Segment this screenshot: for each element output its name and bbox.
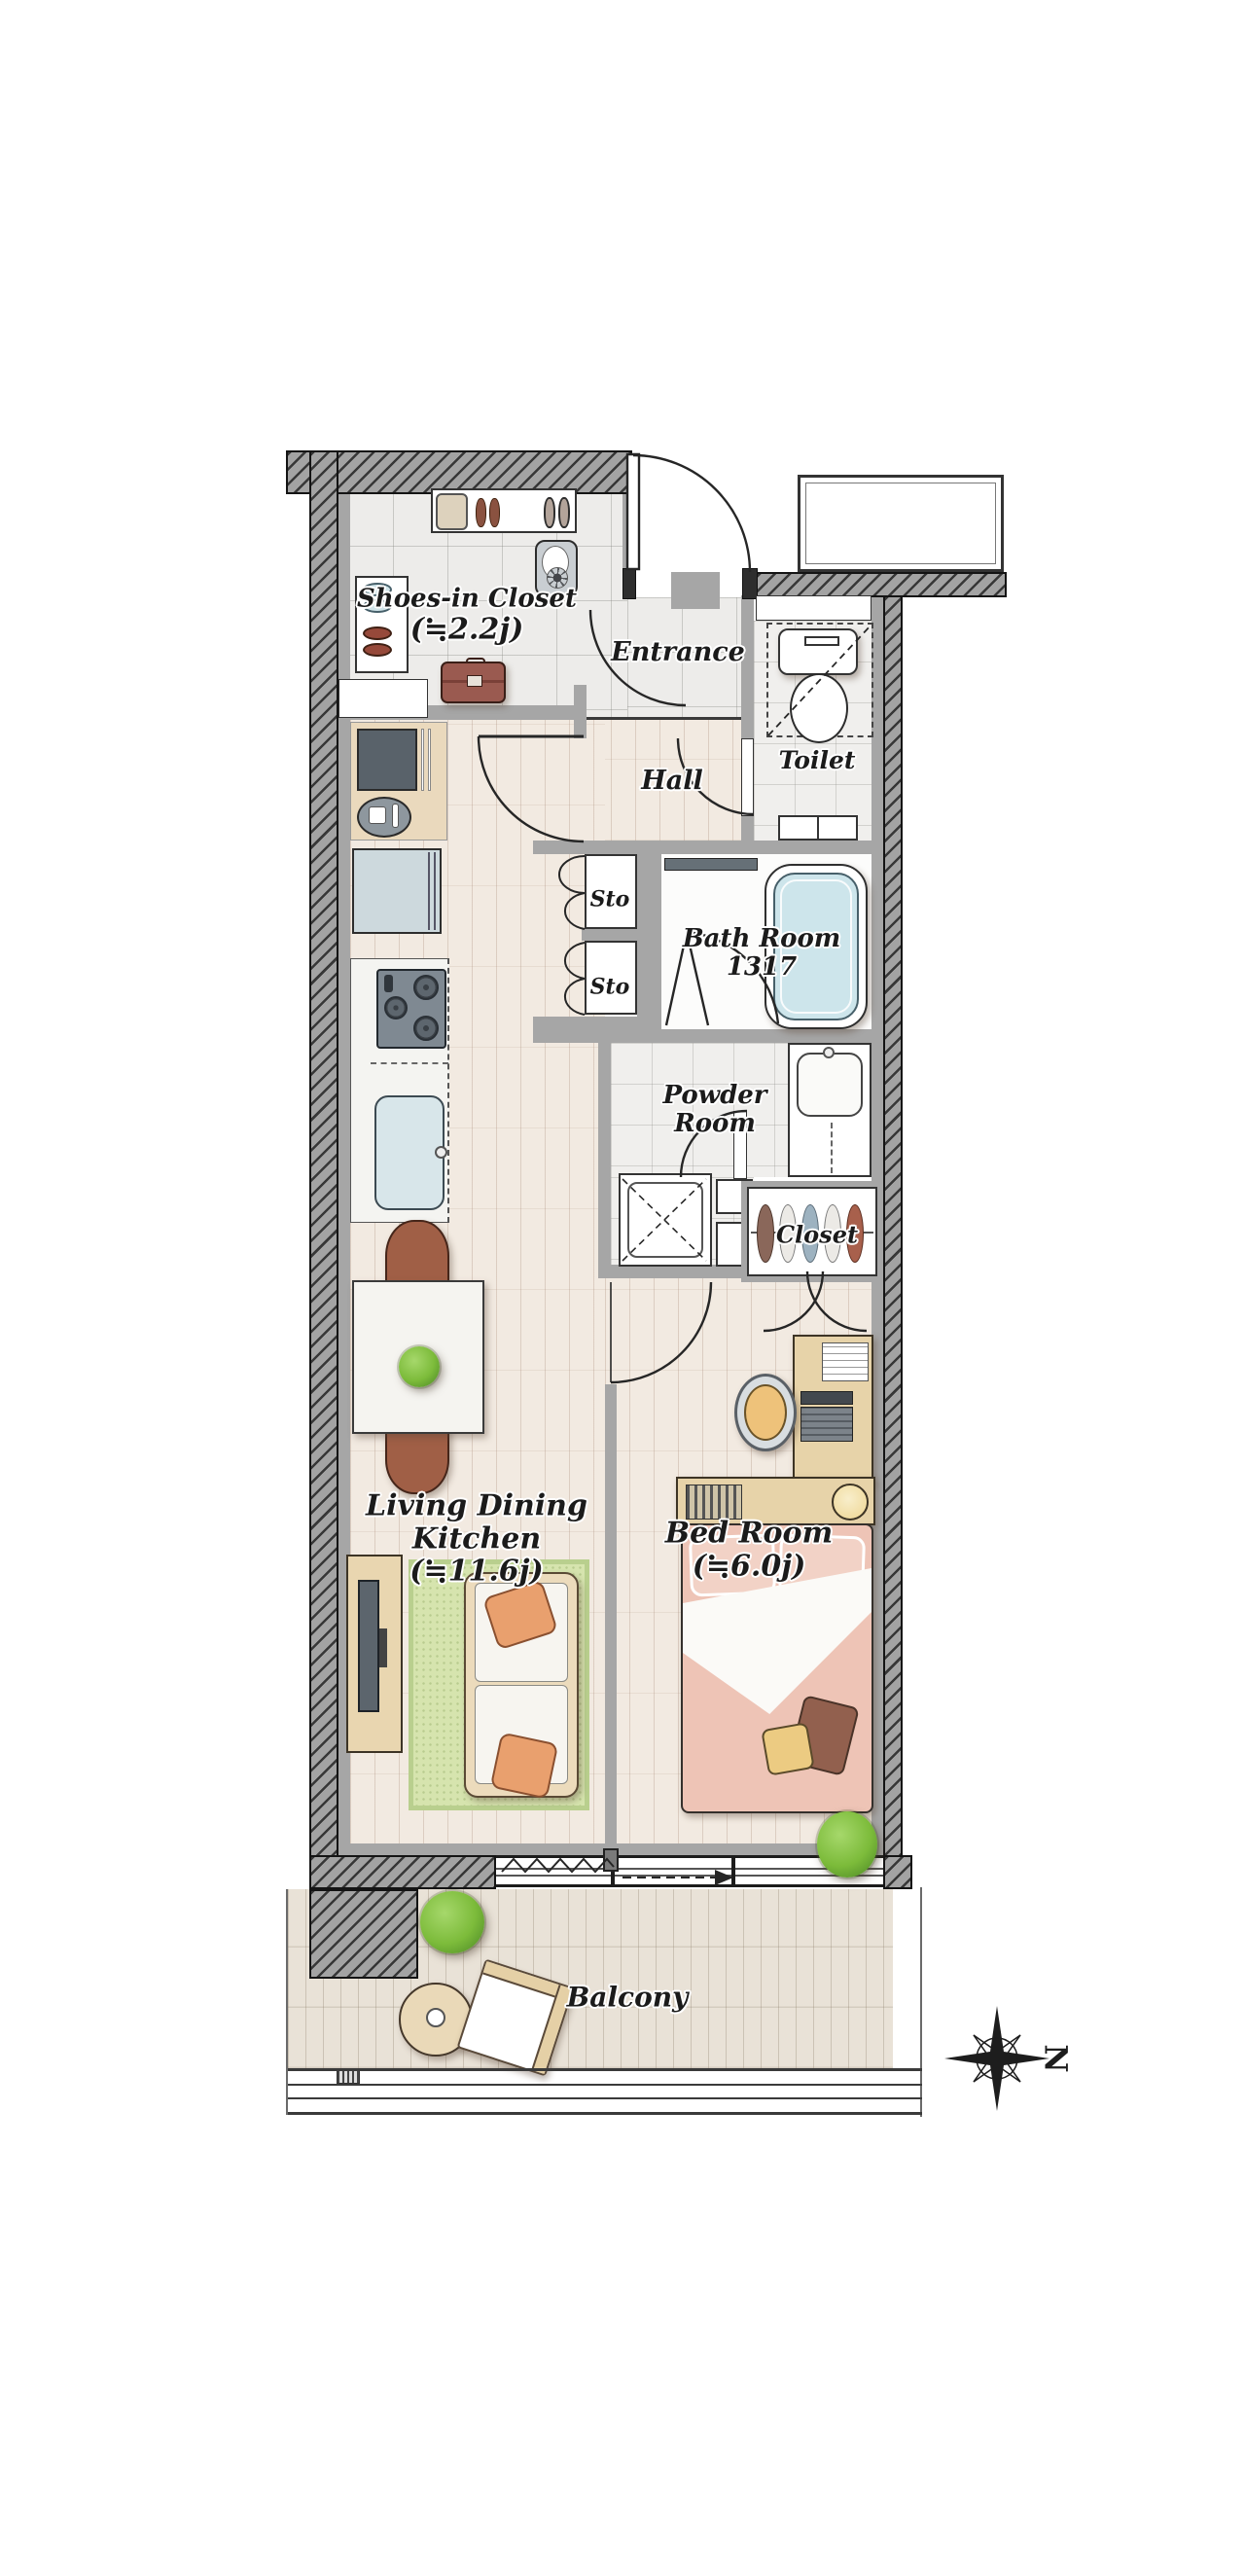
label-shoes-closet: Shoes-in Closet (≒2.2j) — [357, 586, 577, 647]
label-balcony: Balcony — [567, 1982, 689, 2012]
entrance-door-arc — [633, 455, 750, 572]
powder-line1: Powder — [663, 1082, 767, 1110]
ldk-size: (≒11.6j) — [366, 1556, 587, 1589]
ldk-line1: Living Dining — [366, 1490, 587, 1523]
shoes-closet-name: Shoes-in Closet — [357, 586, 577, 614]
washer-dashed-x — [622, 1179, 706, 1261]
label-storage-lower: Sto — [590, 976, 630, 1000]
compass: N — [944, 2006, 1075, 2111]
closet-door-arc-right — [807, 1271, 867, 1331]
sho es-closet-size: (≒2.2j) — [357, 614, 577, 647]
entrance-door-leaf — [627, 454, 639, 569]
label-toilet: Toilet — [779, 747, 856, 774]
sliding-door-arrow — [715, 1870, 733, 1885]
sto-bifold-doors — [559, 856, 585, 1015]
label-bedroom: Bed Room (≒6.0j) — [665, 1517, 834, 1582]
label-ldk: Living Dining Kitchen (≒11.6j) — [366, 1490, 587, 1589]
compass-north-label: N — [1038, 2044, 1075, 2072]
label-powder-room: Powder Room — [663, 1082, 767, 1138]
label-closet: Closet — [776, 1223, 858, 1249]
bathroom-name: Bath Room — [683, 925, 841, 953]
powder-line2: Room — [663, 1110, 767, 1138]
window-zigzag — [502, 1859, 614, 1872]
label-bathroom: Bath Room 1317 — [683, 925, 841, 982]
floor-plan: N Shoes-in Closet (≒2.2j) Entrance Hall … — [0, 0, 1245, 2576]
ldk-door-arc — [479, 736, 584, 841]
label-hall: Hall — [641, 767, 703, 796]
ldk-line2: Kitchen — [366, 1522, 587, 1556]
bathroom-size: 1317 — [683, 953, 841, 982]
compass-main-star — [944, 2006, 1049, 2111]
door-swing-overlay: N — [0, 0, 1245, 2576]
toilet-dashed-diagonal — [768, 625, 871, 735]
bedroom-name: Bed Room — [665, 1517, 834, 1550]
bedroom-size: (≒6.0j) — [665, 1550, 834, 1583]
label-entrance: Entrance — [611, 638, 745, 667]
label-storage-upper: Sto — [590, 888, 630, 912]
bedroom-door-arc — [611, 1282, 711, 1382]
